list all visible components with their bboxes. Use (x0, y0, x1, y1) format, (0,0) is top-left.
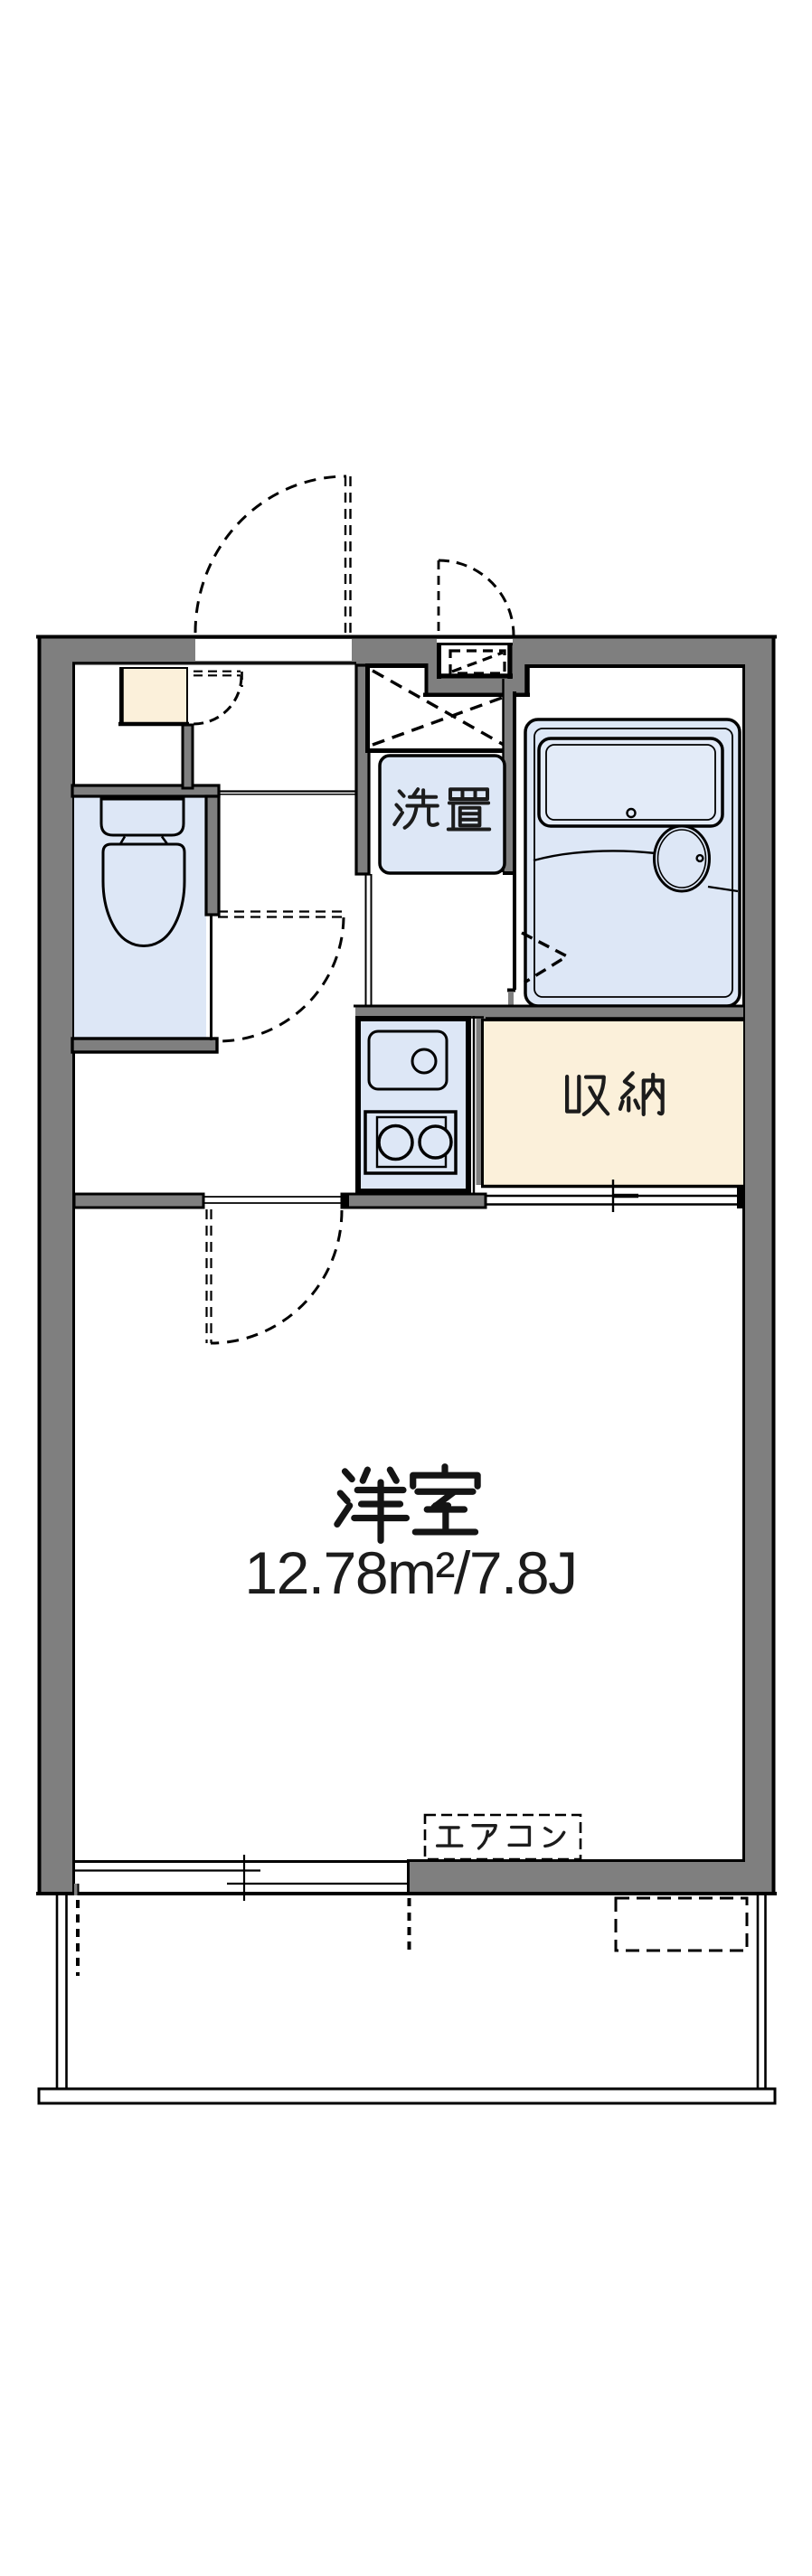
svg-text:12.78m²/7.8J: 12.78m²/7.8J (244, 1539, 576, 1606)
